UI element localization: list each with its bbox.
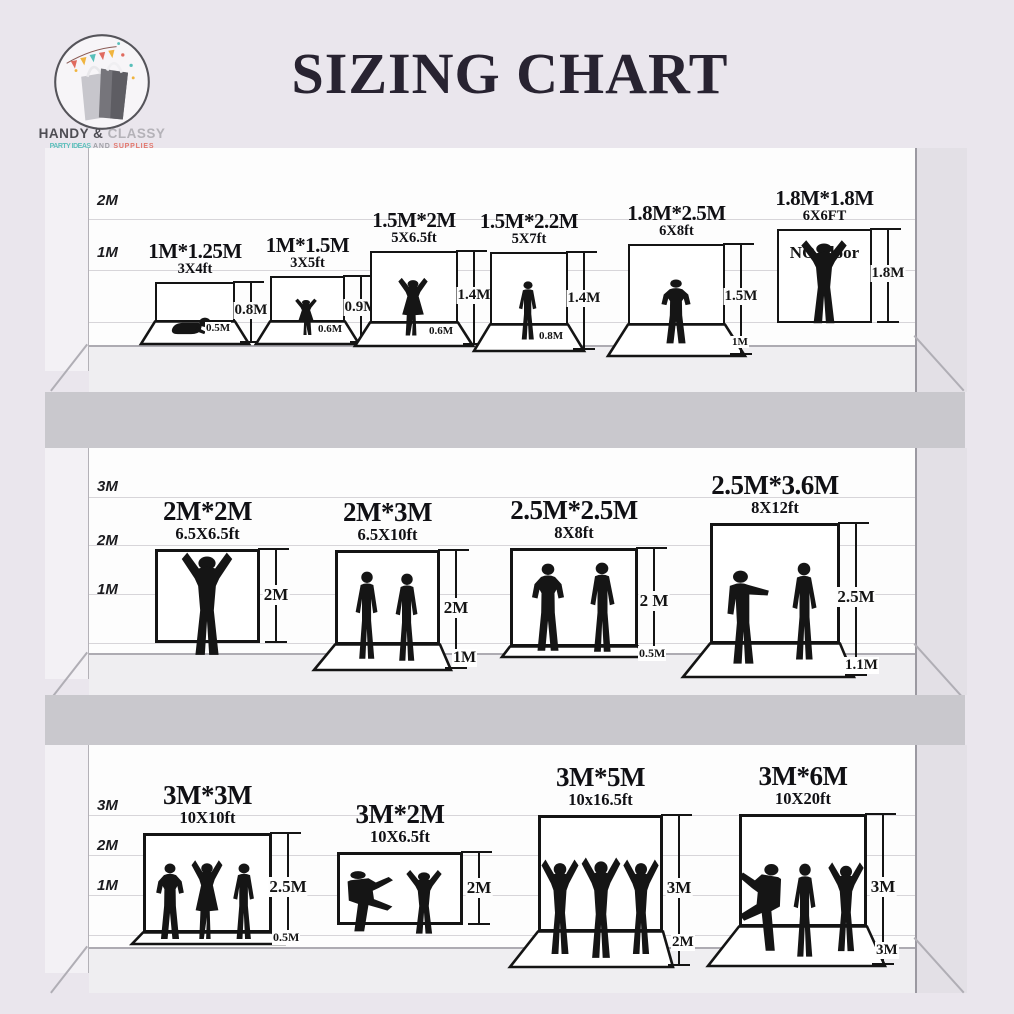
dimension-top-tick	[723, 243, 754, 245]
dimension-bottom-tick	[872, 963, 894, 965]
size-label: 3M*3M	[98, 781, 318, 809]
meter-scale-label: 3M	[97, 478, 118, 495]
meter-scale-label: 1M	[97, 877, 118, 894]
person-silhouette-standing	[782, 562, 826, 662]
feet-label: 10X6.5ft	[290, 828, 510, 845]
height-dimension-label: 2M	[466, 878, 493, 898]
right-wall	[915, 745, 967, 993]
person-silhouette-dress	[394, 277, 432, 337]
shelf-divider	[45, 392, 965, 448]
person-silhouette-dress	[292, 298, 320, 336]
height-dimension-label: 0.8M	[234, 302, 269, 319]
dimension-bottom-tick	[468, 923, 490, 925]
dimension-top-tick	[461, 851, 492, 853]
dimension-top-tick	[870, 228, 901, 230]
person-silhouette-armsv	[578, 856, 624, 960]
floor-mat	[500, 645, 648, 659]
feet-label: 10X20ft	[693, 790, 913, 807]
person-silhouette-armsv	[825, 861, 867, 953]
backdrop-title: 3M*5M10x16.5ft	[491, 763, 711, 808]
feet-label: 10X10ft	[98, 809, 318, 826]
person-silhouette-standing	[580, 562, 624, 654]
person-silhouette-armsv	[403, 869, 445, 935]
floor-depth-label: 0.5M	[638, 646, 666, 661]
dimension-bottom-tick	[573, 348, 595, 350]
page-title: SIZING CHART	[240, 40, 780, 107]
size-label: 3M*2M	[290, 800, 510, 828]
backdrop-title: 3M*2M10X6.5ft	[290, 800, 510, 845]
dimension-top-tick	[661, 814, 692, 816]
height-dimension-label: 2M	[443, 598, 470, 618]
backdrop-title: 3M*3M10X10ft	[98, 781, 318, 826]
height-dimension-label: 1.4M	[457, 287, 492, 304]
dimension-bottom-tick	[265, 641, 287, 643]
floor-depth-label: 0.6M	[317, 323, 343, 335]
person-silhouette-dress	[187, 859, 227, 941]
height-dimension-label: 2.5M	[268, 877, 307, 897]
floor-depth-label: 0.8M	[538, 330, 564, 342]
height-dimension-label: 1.8M	[871, 265, 906, 282]
feet-label: 6X6FT	[715, 209, 935, 224]
size-label: 3M*6M	[693, 762, 913, 790]
left-wall	[45, 148, 89, 371]
feet-label: 10x16.5ft	[491, 791, 711, 808]
height-dimension-label: 1.5M	[724, 288, 759, 305]
height-dimension-label: 1.4M	[567, 290, 602, 307]
backdrop-title: 3M*6M10X20ft	[693, 762, 913, 807]
person-silhouette-hips	[656, 279, 696, 345]
brand-name-part2: CLASSY	[108, 126, 166, 141]
person-silhouette-kick	[339, 869, 393, 933]
person-silhouette-standing	[225, 863, 263, 941]
person-silhouette-armsv	[177, 551, 237, 657]
height-dimension-label: 2M	[263, 585, 290, 605]
floor-depth-label: 2M	[671, 934, 695, 951]
dimension-bottom-tick	[877, 321, 899, 323]
shelf-divider	[45, 695, 965, 745]
brand-name-part1: HANDY &	[39, 126, 104, 141]
floor-depth-label: 0.6M	[428, 325, 454, 337]
dimension-bottom-tick	[845, 674, 867, 676]
person-silhouette-kick	[739, 861, 789, 953]
backdrop-title: 1.8M*1.8M6X6FT	[715, 187, 935, 224]
floor-depth-label: 0.5M	[272, 930, 300, 945]
dimension-top-tick	[438, 549, 469, 551]
height-dimension-label: 2.5M	[836, 587, 875, 607]
size-label: 1.8M*1.8M	[715, 187, 935, 209]
dimension-bottom-tick	[445, 667, 467, 669]
dimension-top-tick	[233, 281, 264, 283]
right-wall	[915, 148, 967, 392]
floor-depth-label: 0.5M	[205, 322, 231, 334]
size-label: 2.5M*3.6M	[665, 471, 885, 499]
person-silhouette-armsv	[538, 858, 582, 956]
person-silhouette-hips	[526, 563, 570, 653]
height-dimension-label: 3M	[666, 878, 693, 898]
left-wall	[45, 448, 89, 679]
floor-depth-label: 1M	[452, 649, 477, 667]
person-silhouette-standing	[387, 573, 427, 663]
left-wall	[45, 745, 89, 973]
meter-scale-label: 2M	[97, 192, 118, 209]
floor-depth-label: 1M	[731, 336, 749, 348]
backdrop-title: 2.5M*2.5M8X8ft	[464, 496, 684, 541]
dimension-top-tick	[636, 547, 667, 549]
height-dimension-label: 3M	[870, 877, 897, 897]
dimension-top-tick	[865, 813, 896, 815]
size-label: 2.5M*2.5M	[464, 496, 684, 524]
brand-logo	[50, 30, 154, 134]
backdrop-title: 2.5M*3.6M8X12ft	[665, 471, 885, 516]
floor-depth-label: 1.1M	[844, 657, 879, 674]
person-silhouette-point	[718, 570, 770, 666]
dimension-top-tick	[566, 251, 597, 253]
meter-scale-label: 1M	[97, 581, 118, 598]
feet-label: 8X8ft	[464, 524, 684, 541]
dimension-top-tick	[838, 522, 869, 524]
feet-label: 6X8ft	[567, 224, 787, 239]
shopping-bags-icon	[50, 30, 154, 134]
feet-label: 8X12ft	[665, 499, 885, 516]
brand-name: HANDY & CLASSY	[36, 126, 168, 141]
dimension-top-tick	[456, 250, 487, 252]
person-silhouette-armsv	[797, 239, 851, 325]
person-silhouette-hips	[151, 863, 189, 941]
size-label: 3M*5M	[491, 763, 711, 791]
sizing-chart-page: HANDY & CLASSY PARTY IDEAS AND SUPPLIES …	[0, 0, 1014, 1014]
dimension-bottom-tick	[668, 964, 690, 966]
person-silhouette-standing	[785, 863, 825, 959]
meter-scale-label: 2M	[97, 837, 118, 854]
right-wall	[915, 448, 967, 695]
floor-depth-label: 3M	[875, 942, 899, 959]
dimension-top-tick	[258, 548, 289, 550]
height-dimension-label: 2 M	[639, 591, 670, 611]
person-silhouette-standing	[347, 571, 387, 661]
person-silhouette-armsv	[620, 858, 662, 956]
dimension-bottom-tick	[730, 353, 752, 355]
